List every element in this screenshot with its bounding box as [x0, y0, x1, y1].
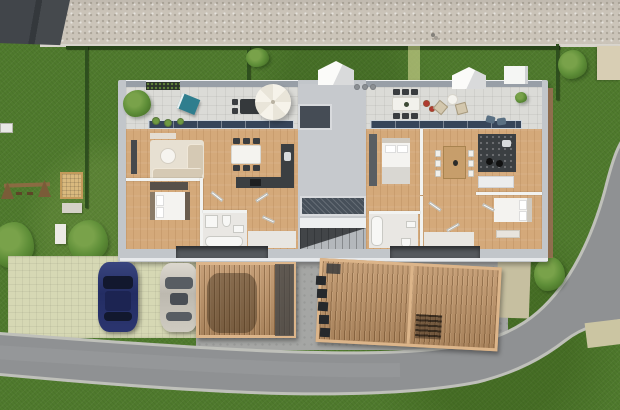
rear-window — [166, 312, 192, 321]
slatted-furniture — [415, 314, 442, 339]
roof-skylight — [298, 104, 332, 130]
tv-sideboard — [131, 140, 137, 174]
roof-canopy — [504, 66, 528, 84]
stair-landing — [300, 218, 366, 228]
wall — [476, 192, 542, 195]
dining-chair — [253, 138, 260, 144]
blue-lounger — [497, 117, 507, 125]
dining-chair — [468, 150, 474, 157]
dining-chair — [435, 150, 441, 157]
outdoor-chair — [232, 99, 238, 105]
pot — [486, 158, 493, 165]
pillow — [397, 145, 408, 153]
dining-chair — [233, 165, 240, 171]
outdoor-chair — [402, 113, 409, 119]
roadside-wedge — [585, 319, 620, 348]
waste-bin — [316, 276, 326, 286]
terrace-corner-tree — [123, 90, 151, 117]
sink — [284, 152, 291, 161]
stairwell-shadow — [300, 228, 366, 249]
shelf — [150, 133, 176, 139]
kitchen-block-right-unit — [478, 134, 516, 172]
car-silhouette — [207, 273, 257, 333]
pillow — [156, 195, 164, 206]
outdoor-chair — [232, 108, 238, 114]
bed-right-unit-2 — [494, 198, 532, 222]
pillow — [519, 200, 527, 210]
gravel-border-strip — [548, 88, 553, 258]
washbasin — [233, 225, 244, 233]
bed-left-unit — [150, 192, 190, 220]
silver-car — [160, 263, 198, 332]
car-roof — [105, 291, 131, 311]
windshield — [103, 276, 133, 289]
carport-shed-section — [275, 264, 294, 336]
kitchen-counter-left-unit — [281, 144, 294, 178]
toilet — [222, 215, 231, 227]
washbasin — [406, 221, 416, 228]
outdoor-chair — [393, 113, 400, 119]
terrace-pot — [362, 84, 368, 90]
double-carport — [316, 258, 502, 351]
wall — [126, 178, 202, 181]
terrace-pot — [354, 84, 360, 90]
bathtub — [371, 216, 383, 246]
entrance-porch-left — [176, 246, 268, 258]
dining-chair — [243, 138, 250, 144]
wall — [420, 196, 423, 249]
pot — [496, 160, 503, 167]
outdoor-chair — [411, 89, 418, 95]
carport-storage-box — [326, 263, 341, 274]
sunroof — [170, 293, 188, 305]
shower — [205, 215, 218, 228]
potted-plant — [152, 117, 160, 125]
dining-chair — [243, 165, 250, 171]
parasol — [255, 84, 291, 120]
central-stairwell — [300, 228, 366, 249]
kitchen-island-white — [478, 176, 514, 188]
coffee-table — [160, 148, 176, 164]
light-well-grate — [300, 196, 366, 216]
wardrobe — [150, 182, 188, 190]
waste-bin — [319, 315, 329, 324]
single-carport — [196, 262, 296, 338]
kitchen-counter-left-unit — [236, 177, 294, 188]
roadside-tree — [534, 257, 565, 291]
windshield — [165, 277, 193, 289]
entrance-porch-right — [390, 246, 480, 258]
carport-divider — [407, 266, 414, 344]
bed-right-unit-1 — [382, 138, 410, 184]
dining-chair — [435, 160, 441, 167]
dining-table-right-unit — [443, 146, 466, 179]
pillow — [519, 211, 527, 221]
terrace-planter — [146, 81, 180, 90]
potted-plant — [177, 118, 184, 125]
wardrobe — [369, 134, 377, 186]
outdoor-table-white — [392, 97, 420, 111]
aerial-site-render — [0, 0, 620, 410]
table-plant — [404, 102, 409, 107]
outdoor-chair — [402, 89, 409, 95]
dining-chair — [468, 160, 474, 167]
dining-chair — [435, 170, 441, 177]
wall — [420, 129, 423, 195]
dining-table-left-unit — [231, 145, 261, 164]
rear-window — [104, 312, 132, 321]
terrace-pot — [370, 84, 376, 90]
blue-car — [98, 262, 138, 332]
blanket — [382, 167, 410, 184]
waste-bin — [320, 328, 330, 338]
waste-bin — [318, 302, 329, 312]
sink — [502, 140, 511, 147]
lamppost — [431, 33, 435, 37]
pillow — [156, 207, 164, 218]
dining-chair — [468, 170, 474, 177]
outdoor-chair — [393, 89, 400, 95]
hedge-shadow — [66, 46, 560, 50]
dining-chair — [253, 165, 260, 171]
pillow — [385, 145, 396, 153]
parasol-pole — [271, 100, 275, 104]
desk — [496, 230, 520, 238]
outdoor-chair — [411, 113, 418, 119]
terrace-plant — [515, 92, 527, 103]
waste-bin — [317, 289, 327, 298]
dining-chair — [233, 138, 240, 144]
centerpiece — [453, 160, 458, 166]
potted-plant — [164, 119, 172, 127]
cooktop — [250, 179, 261, 186]
